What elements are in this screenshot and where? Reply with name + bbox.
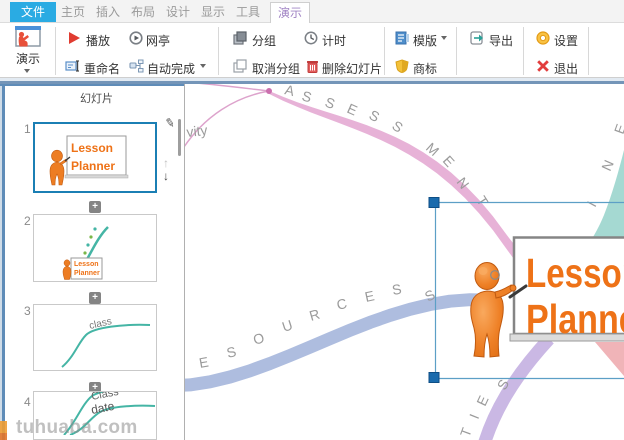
svg-text:S: S bbox=[367, 107, 383, 126]
svg-text:Lesson: Lesson bbox=[526, 250, 624, 296]
svg-text:R: R bbox=[307, 306, 321, 324]
svg-text:I: I bbox=[466, 412, 482, 422]
svg-text:C: C bbox=[335, 295, 349, 313]
svg-text:S: S bbox=[391, 281, 403, 298]
svg-text:U: U bbox=[280, 317, 295, 335]
svg-text:Lesson: Lesson bbox=[71, 141, 113, 155]
svg-text:Planner: Planner bbox=[526, 296, 624, 342]
svg-text:vity: vity bbox=[186, 122, 209, 140]
svg-text:Lesson: Lesson bbox=[74, 261, 99, 268]
svg-text:T: T bbox=[457, 425, 475, 439]
svg-text:E: E bbox=[345, 100, 360, 118]
svg-text:Planner: Planner bbox=[74, 270, 100, 277]
svg-text:A: A bbox=[283, 81, 296, 99]
svg-text:O: O bbox=[251, 329, 266, 348]
svg-text:I: I bbox=[584, 198, 600, 209]
svg-text:N: N bbox=[598, 157, 617, 173]
svg-text:S: S bbox=[323, 94, 337, 112]
svg-text:Planner: Planner bbox=[71, 159, 115, 173]
svg-text:E: E bbox=[473, 393, 491, 408]
svg-text:E: E bbox=[198, 354, 210, 371]
svg-text:S: S bbox=[225, 343, 238, 361]
svg-text:S: S bbox=[300, 88, 313, 106]
svg-text:E: E bbox=[363, 287, 375, 305]
svg-text:S: S bbox=[389, 117, 406, 135]
svg-text:E: E bbox=[611, 122, 624, 136]
svg-text:class: class bbox=[88, 316, 113, 332]
